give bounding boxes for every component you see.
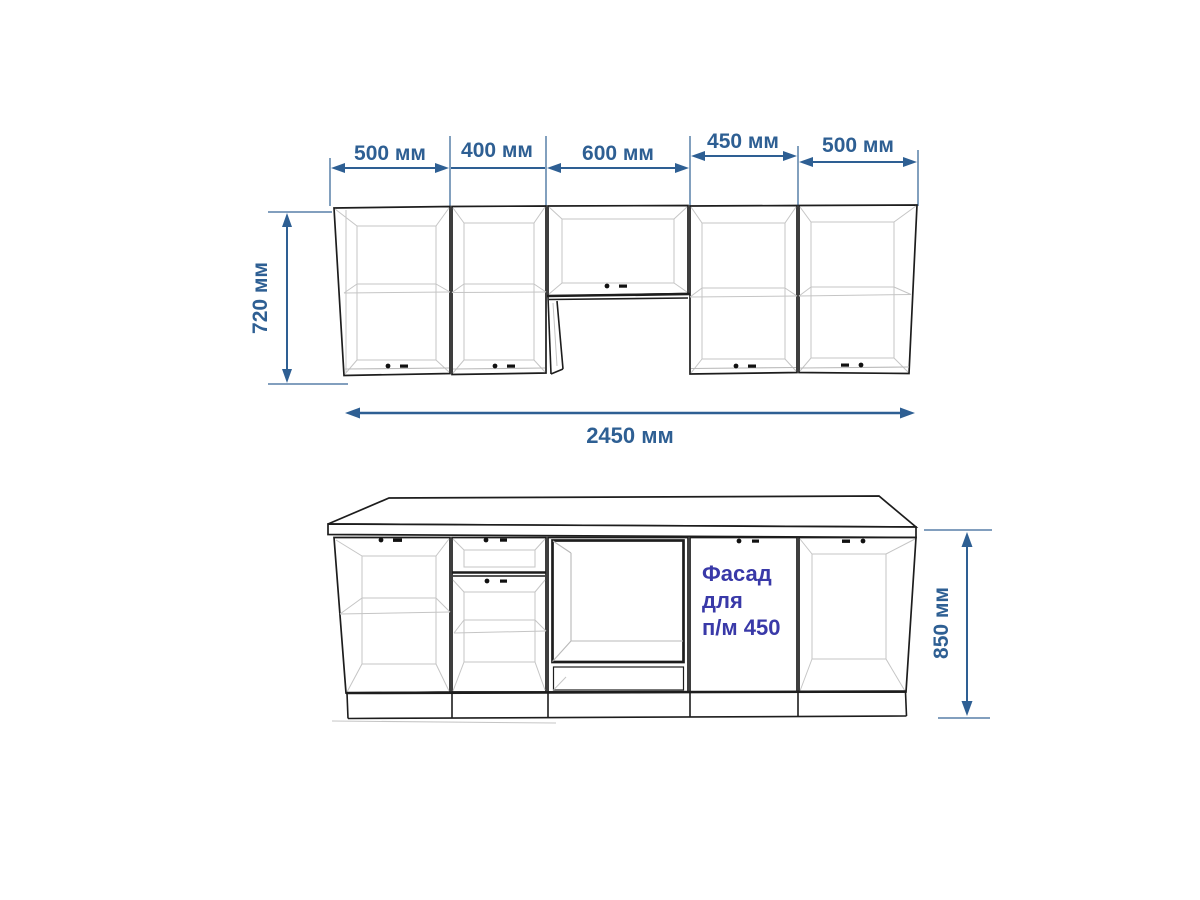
dishwasher-note-line2: для [702, 588, 743, 613]
upper-cabinet-5-500 [799, 205, 917, 374]
upper-cabinet-3-600-flap [547, 206, 690, 375]
dim-label-500-2: 500 мм [822, 134, 894, 157]
base-cabinet-4-450-dishwasher: Фасад для п/м 450 [690, 538, 797, 693]
upper-cabinet-1-500 [334, 207, 450, 376]
upper-cabinets-elevation [334, 205, 917, 376]
dim-label-500-1: 500 мм [354, 142, 426, 165]
base-cabinet-5-500 [799, 538, 916, 693]
dim-label-450: 450 мм [707, 130, 779, 153]
side-panel-below-flap [548, 297, 563, 374]
dim-label-720: 720 мм [249, 262, 272, 334]
dim-label-850: 850 мм [930, 587, 953, 659]
base-cabinet-3-600-oven [548, 538, 688, 693]
dim-label-400: 400 мм [461, 139, 533, 162]
dim-upper-seg-400: 400 мм [451, 139, 545, 168]
plinth [332, 692, 907, 724]
drawing-svg: 500 мм 400 мм 600 мм 450 мм 500 мм [0, 0, 1200, 900]
total-width-dimension: 2450 мм [345, 408, 915, 449]
base-cabinet-2-400 [452, 538, 546, 693]
kitchen-cabinet-drawing: 500 мм 400 мм 600 мм 450 мм 500 мм [0, 0, 1200, 900]
dishwasher-note-line3: п/м 450 [702, 615, 781, 640]
countertop [328, 496, 916, 538]
dim-upper-seg-600: 600 мм [547, 142, 689, 173]
upper-cabinet-4-450 [690, 206, 797, 375]
upper-height-dimension: 720 мм [249, 212, 348, 384]
dim-label-600: 600 мм [582, 142, 654, 165]
dim-upper-seg-450: 450 мм [691, 130, 797, 161]
base-cabinet-1-500 [334, 538, 450, 694]
dim-upper-seg-500-1: 500 мм [331, 142, 449, 173]
dim-label-2450: 2450 мм [586, 423, 674, 448]
upper-width-dimensions: 500 мм 400 мм 600 мм 450 мм 500 мм [330, 130, 918, 206]
upper-cabinet-2-400 [452, 206, 546, 375]
base-cabinets-elevation: Фасад для п/м 450 [328, 496, 916, 723]
dishwasher-note-line1: Фасад [702, 561, 772, 586]
dim-upper-seg-500-2: 500 мм [799, 134, 917, 167]
base-height-dimension: 850 мм [924, 530, 992, 718]
